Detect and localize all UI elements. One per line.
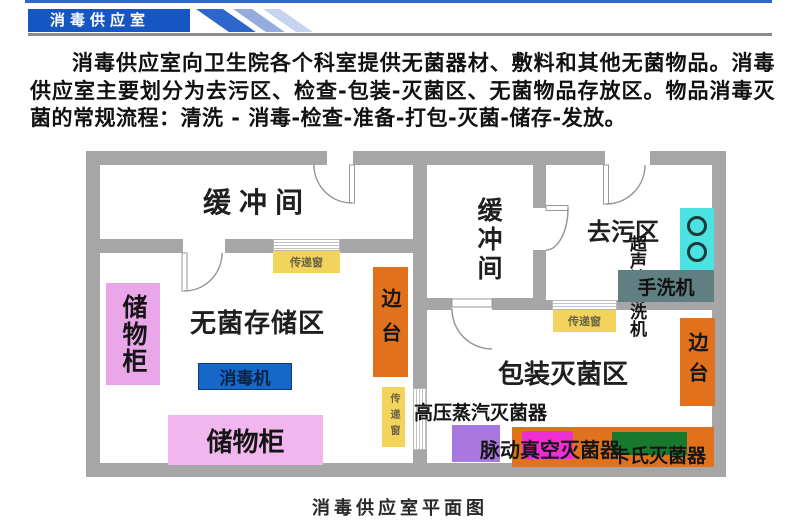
intro-paragraph: 消毒供应室向卫生院各个科室提供无菌器材、敷料和其他无菌物品。消毒供应室主要划分为… <box>30 50 775 133</box>
wall-segment <box>492 298 546 310</box>
wall-segment <box>533 250 546 298</box>
basin-circle <box>687 242 707 262</box>
wall-segment <box>650 151 726 165</box>
floor-plan: 缓冲间 缓冲间 无菌存储区 去污区 包装灭菌区 储物柜 消毒机 储物柜 边台 传… <box>86 151 726 477</box>
disinfector-unit: 消毒机 <box>198 363 292 390</box>
room-label-buffer-right: 缓冲间 <box>470 197 506 281</box>
transfer-window-center: 传递窗 <box>382 387 405 447</box>
transfer-window-hatch <box>552 300 617 310</box>
header-divider <box>28 33 772 36</box>
ultrasonic-cleaner-unit <box>680 208 714 270</box>
wall-segment <box>712 165 726 463</box>
page: 消毒供应室 消毒供应室向卫生院各个科室提供无菌器材、敷料和其他无菌物品。消毒供应… <box>0 0 800 531</box>
page-title: 消毒供应室 <box>28 9 190 32</box>
hand-washer-unit: 手洗机 <box>618 270 714 302</box>
top-accent-strip <box>25 0 772 3</box>
steam-sterilizer-label: 高压蒸汽灭菌器 <box>414 398 547 425</box>
title-banner: 消毒供应室 <box>28 9 190 32</box>
transfer-window-hatch <box>273 239 340 251</box>
wall-segment <box>100 239 183 253</box>
wall-segment <box>225 239 273 253</box>
wall-segment <box>86 151 327 165</box>
storage-cabinet-left: 储物柜 <box>106 283 160 385</box>
wall-segment <box>533 165 546 208</box>
room-label-packing-sterilization: 包装灭菌区 <box>498 354 624 391</box>
wall-segment <box>353 151 605 165</box>
storage-cabinet-bottom: 储物柜 <box>168 415 323 465</box>
wall-segment <box>413 165 427 388</box>
cassette-sterilizer-label: 卡氏灭菌器 <box>611 441 706 468</box>
pulse-vacuum-sterilizer-label: 脉动真空灭菌器 <box>480 434 620 463</box>
plan-caption: 消毒供应室平面图 <box>0 494 800 520</box>
side-table-left: 边台 <box>373 267 408 377</box>
wall-segment <box>413 450 427 463</box>
side-table-right: 边台 <box>680 318 715 406</box>
wall-segment <box>86 165 100 463</box>
room-label-sterile-storage: 无菌存储区 <box>190 303 322 340</box>
transfer-window-left: 传递窗 <box>273 251 340 273</box>
wall-segment <box>340 239 413 253</box>
wall-segment <box>427 298 452 310</box>
basin-circle <box>687 216 707 236</box>
room-label-buffer-left: 缓冲间 <box>194 181 320 221</box>
transfer-window-right: 传递窗 <box>553 310 616 332</box>
